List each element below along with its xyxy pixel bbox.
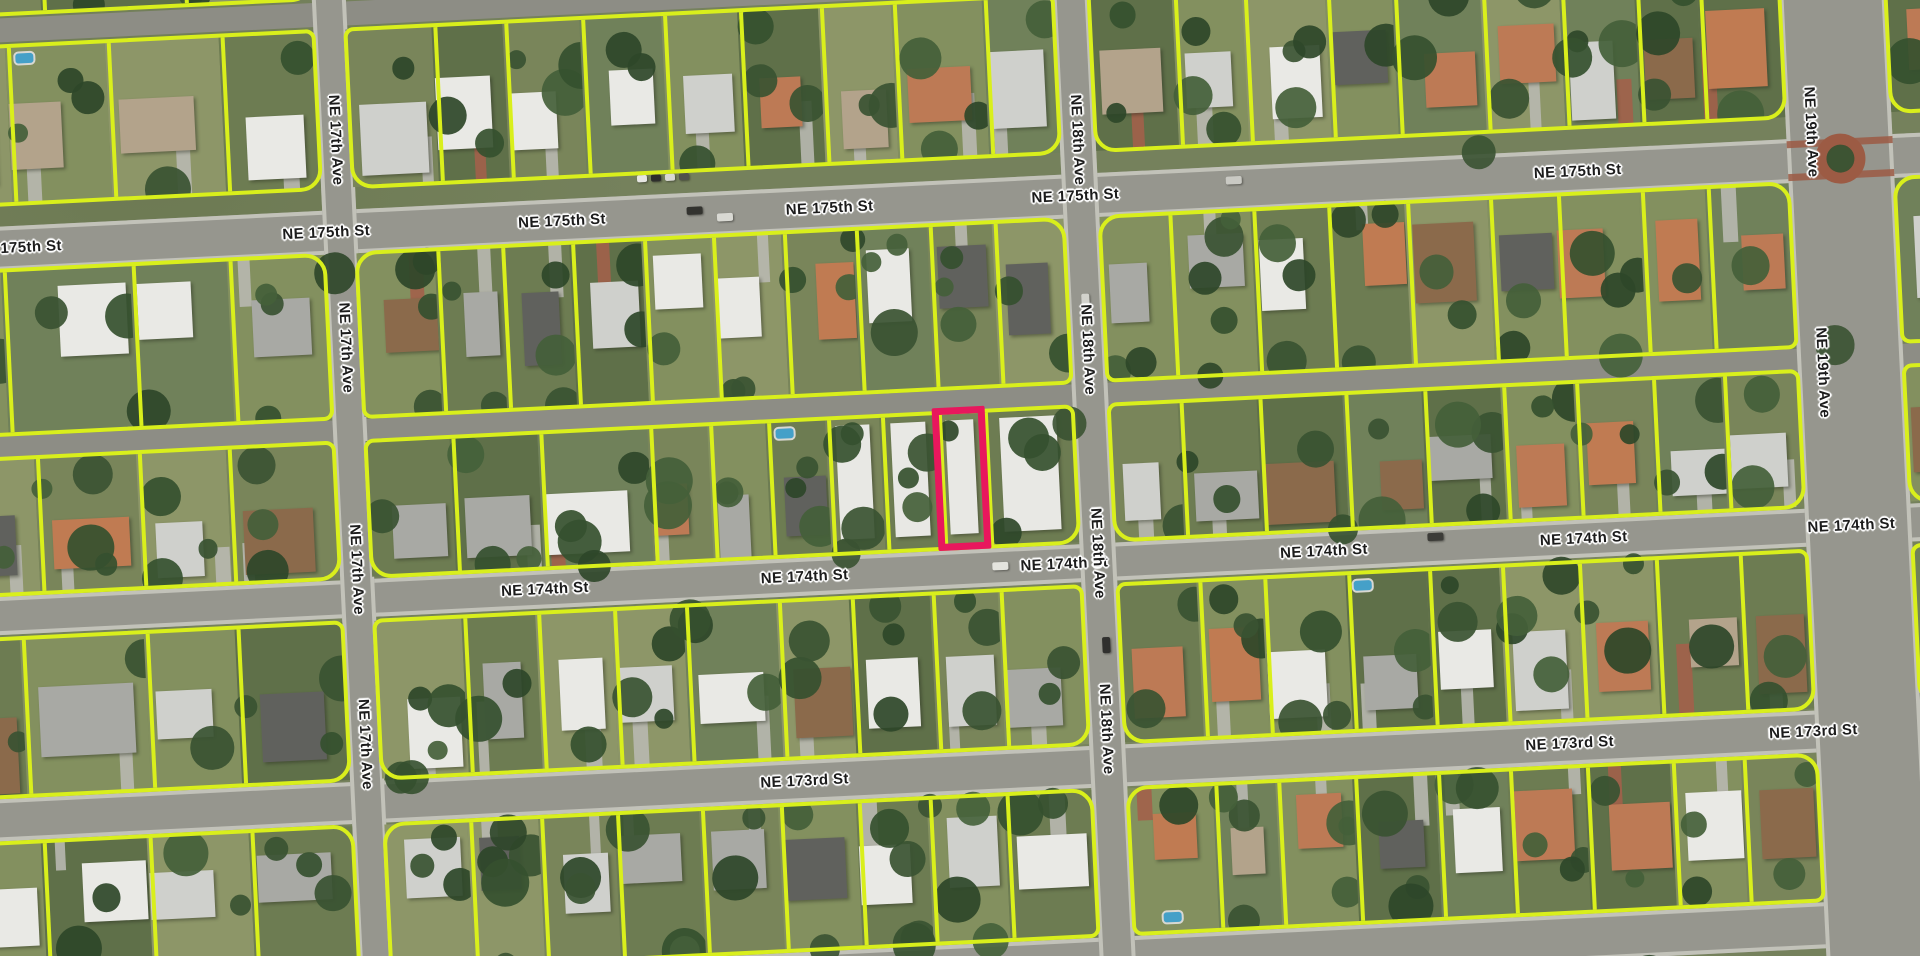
parcel-boundaries [1115, 549, 1816, 745]
parcel-boundary-line [778, 603, 790, 757]
highlighted-parcel[interactable] [932, 406, 992, 551]
parcel-boundary-line [643, 241, 655, 401]
parcel-boundary-line [1557, 196, 1569, 356]
parcel-boundary-line [613, 611, 625, 765]
parcel-boundary-line [43, 843, 54, 956]
parcel-boundary-line [1672, 763, 1683, 905]
parcel-boundary-line [1655, 560, 1667, 714]
parcel-boundary-line [501, 248, 513, 408]
parcel-boundary-line [1406, 204, 1418, 364]
parcel-boundary-line [783, 234, 795, 394]
parcel-boundary-line [1345, 395, 1355, 527]
parcel-boundary-line [649, 429, 659, 561]
parcel-boundary-line [709, 426, 719, 558]
parcel-boundary-line [1263, 579, 1275, 733]
parcel-boundary-line [1586, 768, 1597, 910]
parcel-boundary-line [712, 238, 724, 398]
parcel-boundary-line [183, 0, 189, 3]
parcel-boundary-line [1348, 575, 1360, 729]
parcel-boundary-line [229, 261, 241, 421]
parcel-boundary-line [1739, 556, 1751, 710]
parcel-boundary-line [433, 27, 445, 181]
parcel-boundary-line [1252, 211, 1264, 371]
parcel-boundary-line [767, 423, 777, 555]
parcel-boundary-line [106, 43, 118, 197]
car [686, 206, 702, 215]
parcel-boundaries [0, 824, 362, 956]
parcel-boundary-line [451, 439, 461, 571]
parcel-boundaries [0, 29, 323, 211]
parcel-boundary-line [1560, 0, 1572, 126]
parcel-boundary-line [1578, 564, 1590, 718]
parcel-boundary-line [1214, 786, 1225, 928]
parcel-boundary-line [739, 12, 751, 166]
parcel-boundary-line [929, 227, 941, 387]
parcel-boundary-line [1006, 796, 1017, 938]
parcel-boundary-line [146, 634, 158, 788]
aerial-parcel-map: E 175th StNE 175th StNE 175th StNE 175th… [0, 0, 1920, 956]
car [665, 174, 675, 181]
parcel-boundary-line [1258, 399, 1268, 531]
car [637, 175, 647, 182]
parcel-boundaries [354, 217, 1073, 420]
parcel-boundary-line [932, 595, 944, 749]
parcel-boundary-line [581, 20, 593, 174]
parcel-boundary-line [1354, 779, 1365, 921]
parcel-boundary-line [463, 618, 475, 772]
car [1226, 176, 1242, 185]
parcel-boundaries [0, 620, 352, 802]
parcel-boundary-line [36, 459, 46, 591]
parcel-boundaries [0, 253, 334, 441]
parcel-boundary-line [1169, 215, 1181, 375]
parcel-boundary-line [893, 5, 905, 159]
car [992, 562, 1008, 571]
parcel-boundary-line [881, 418, 891, 550]
parcel-boundary-line [221, 37, 233, 191]
parcel-boundary-line [1482, 0, 1494, 130]
parcel-boundary-line [780, 807, 791, 949]
parcel-boundary-line [929, 800, 940, 942]
parcel-boundary-line [983, 0, 995, 154]
parcel-boundary-line [132, 266, 144, 426]
parcel-boundary-line [537, 615, 549, 769]
parcel-boundary-line [855, 231, 867, 391]
parcel-boundary-line [851, 599, 863, 753]
car [717, 213, 733, 222]
parcel-boundary-line [1575, 384, 1585, 516]
parcel-boundary-line [1394, 0, 1406, 134]
parcel-boundary-line [1723, 376, 1733, 508]
parcel-boundary-line [1489, 200, 1501, 360]
parcel-boundary-line [1502, 387, 1512, 519]
parcel-boundary-line [1174, 0, 1186, 145]
parcel-boundary-line [820, 8, 832, 162]
parcel-boundary-line [22, 640, 34, 794]
parcel-boundary-line [1327, 208, 1339, 368]
car [651, 174, 661, 181]
parcel-boundary-line [994, 224, 1006, 384]
parcel-boundary-line [1199, 582, 1211, 736]
parcel-boundary-line [1243, 0, 1255, 141]
parcel-boundary-line [663, 16, 675, 170]
parcel-boundary-line [1652, 380, 1662, 512]
parcel-boundary-line [469, 822, 480, 956]
parcel-boundary-line [701, 811, 712, 953]
parcel-boundary-line [1277, 783, 1288, 925]
parcel-boundary-line [1742, 760, 1753, 902]
parcel-boundaries [1097, 181, 1798, 383]
parcel-boundary-line [1635, 0, 1647, 122]
parcel-boundary-line [858, 803, 869, 945]
parcel-boundary-line [1641, 192, 1653, 352]
parcel-boundary-line [504, 24, 516, 178]
parcel-boundary-line [539, 434, 549, 566]
parcel-boundary-line [149, 838, 160, 956]
parcel-boundary-line [227, 450, 237, 582]
parcel-boundary-line [1707, 189, 1719, 349]
parcel-boundary-line [138, 454, 148, 586]
tree [1826, 144, 1855, 173]
parcel-boundary-line [437, 251, 449, 411]
parcel-boundary-line [251, 833, 262, 956]
parcel-boundary-line [571, 245, 583, 405]
parcel-boundary-line [1000, 592, 1012, 746]
parcel-boundary-line [616, 815, 627, 956]
parcel-boundary-line [41, 0, 47, 10]
parcel-boundaries [0, 440, 342, 600]
parcel-boundary-line [3, 272, 15, 432]
parcel-boundary-line [1424, 391, 1434, 523]
parcel-boundary-line [1437, 775, 1448, 917]
parcel-boundary-line [1428, 571, 1440, 725]
parcel-boundary-line [1327, 0, 1339, 137]
parcel-boundary-line [236, 629, 248, 783]
parcel-boundary-line [1179, 403, 1189, 535]
car [679, 173, 689, 180]
parcel-boundary-line [827, 420, 837, 552]
car [1427, 532, 1443, 541]
parcel-boundary-line [685, 607, 697, 761]
car [1102, 637, 1111, 653]
parcel-boundary-line [6, 48, 18, 202]
parcel-boundary-line [1509, 771, 1520, 913]
parcel-boundary-line [1697, 0, 1709, 119]
parcel-boundary-line [1501, 568, 1513, 722]
parcel-boundary-line [540, 819, 551, 956]
